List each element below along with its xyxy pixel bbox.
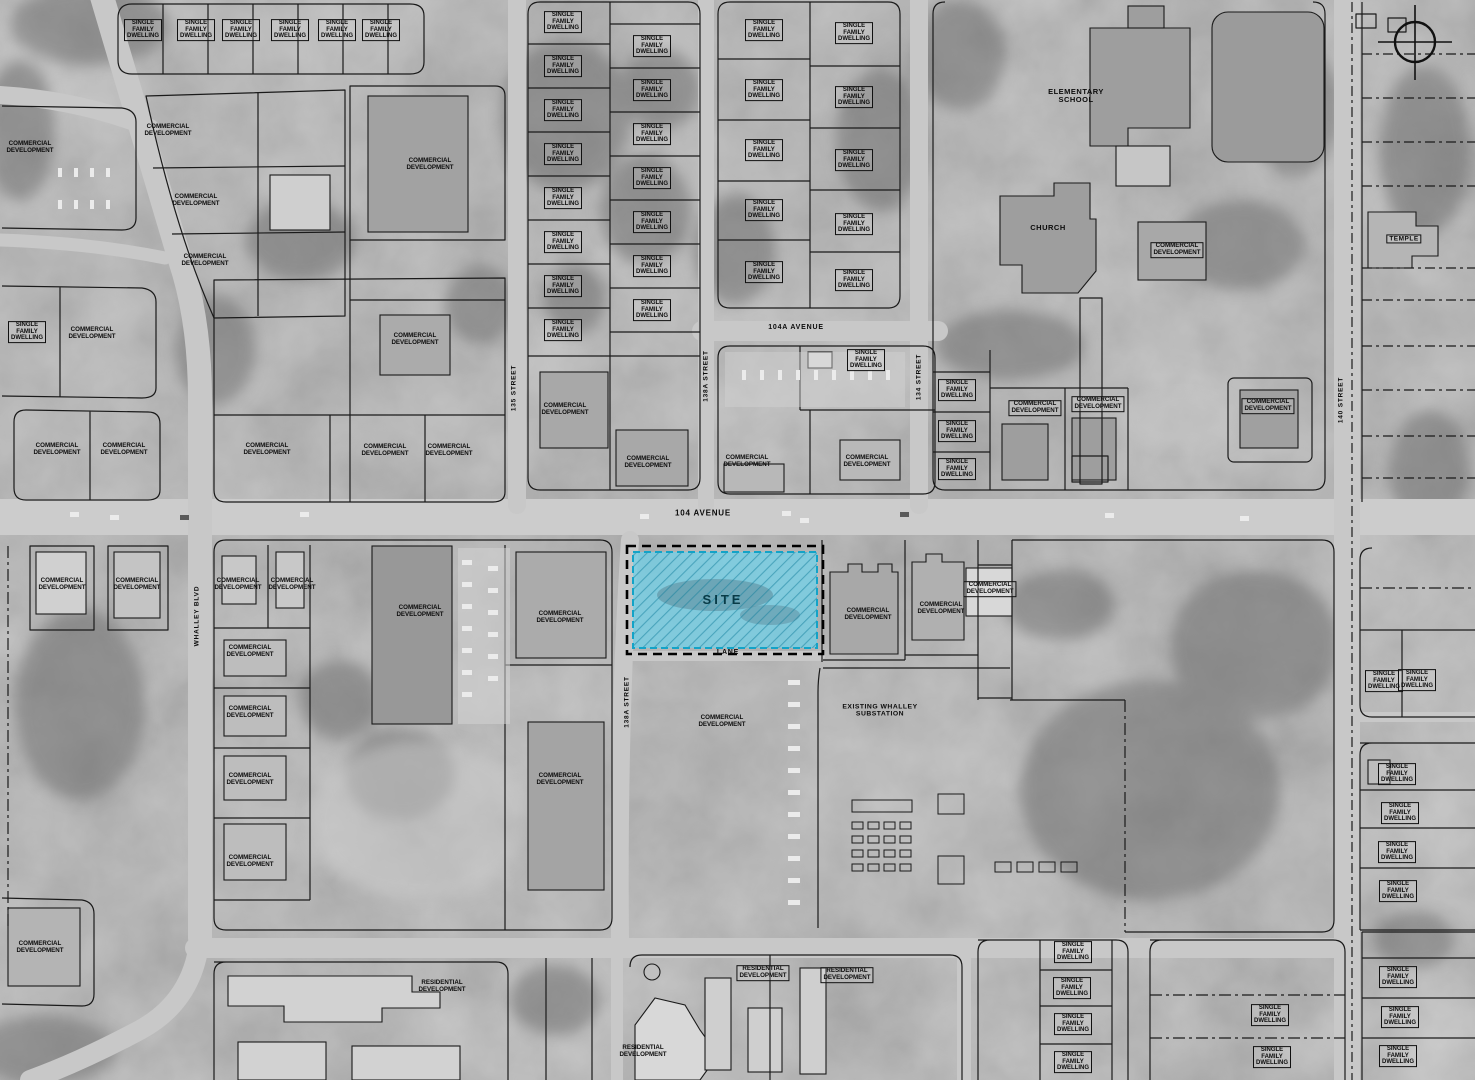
school-building xyxy=(1090,28,1190,146)
commercial-building xyxy=(368,96,468,232)
land-use-context-map: SITE 104 AVENUE104A AVENUELANEWHALLEY BL… xyxy=(0,0,1475,1080)
site-parcel xyxy=(627,546,823,654)
playing-field xyxy=(1212,12,1324,162)
pond xyxy=(644,964,660,980)
map-canvas xyxy=(0,0,1475,1080)
